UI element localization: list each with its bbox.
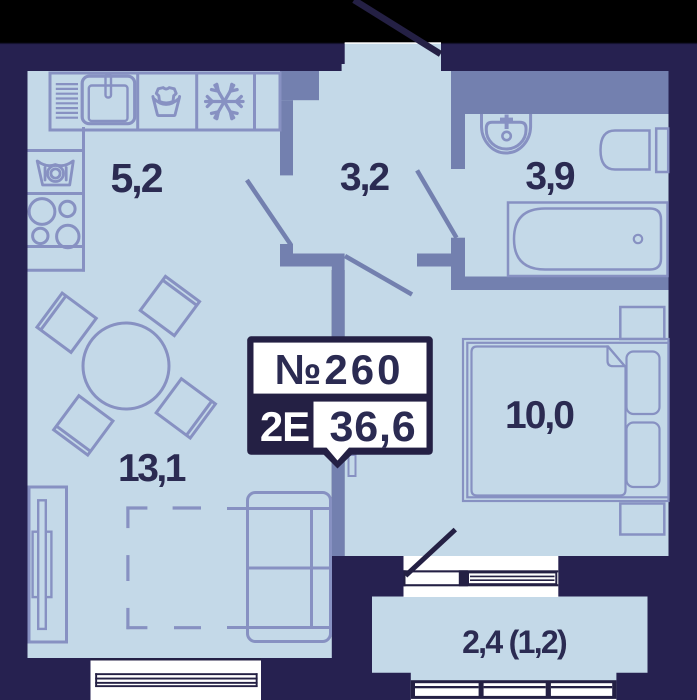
svg-text:13,1: 13,1	[118, 447, 186, 490]
svg-text:10,0: 10,0	[505, 394, 574, 437]
svg-text:№260: №260	[275, 346, 404, 393]
svg-text:3,2: 3,2	[340, 156, 390, 199]
svg-text:36,6: 36,6	[330, 403, 417, 451]
svg-text:3,9: 3,9	[525, 155, 575, 198]
svg-text:2,4 (1,2): 2,4 (1,2)	[462, 624, 567, 660]
svg-text:5,2: 5,2	[111, 155, 163, 201]
svg-text:2Е: 2Е	[260, 403, 309, 450]
